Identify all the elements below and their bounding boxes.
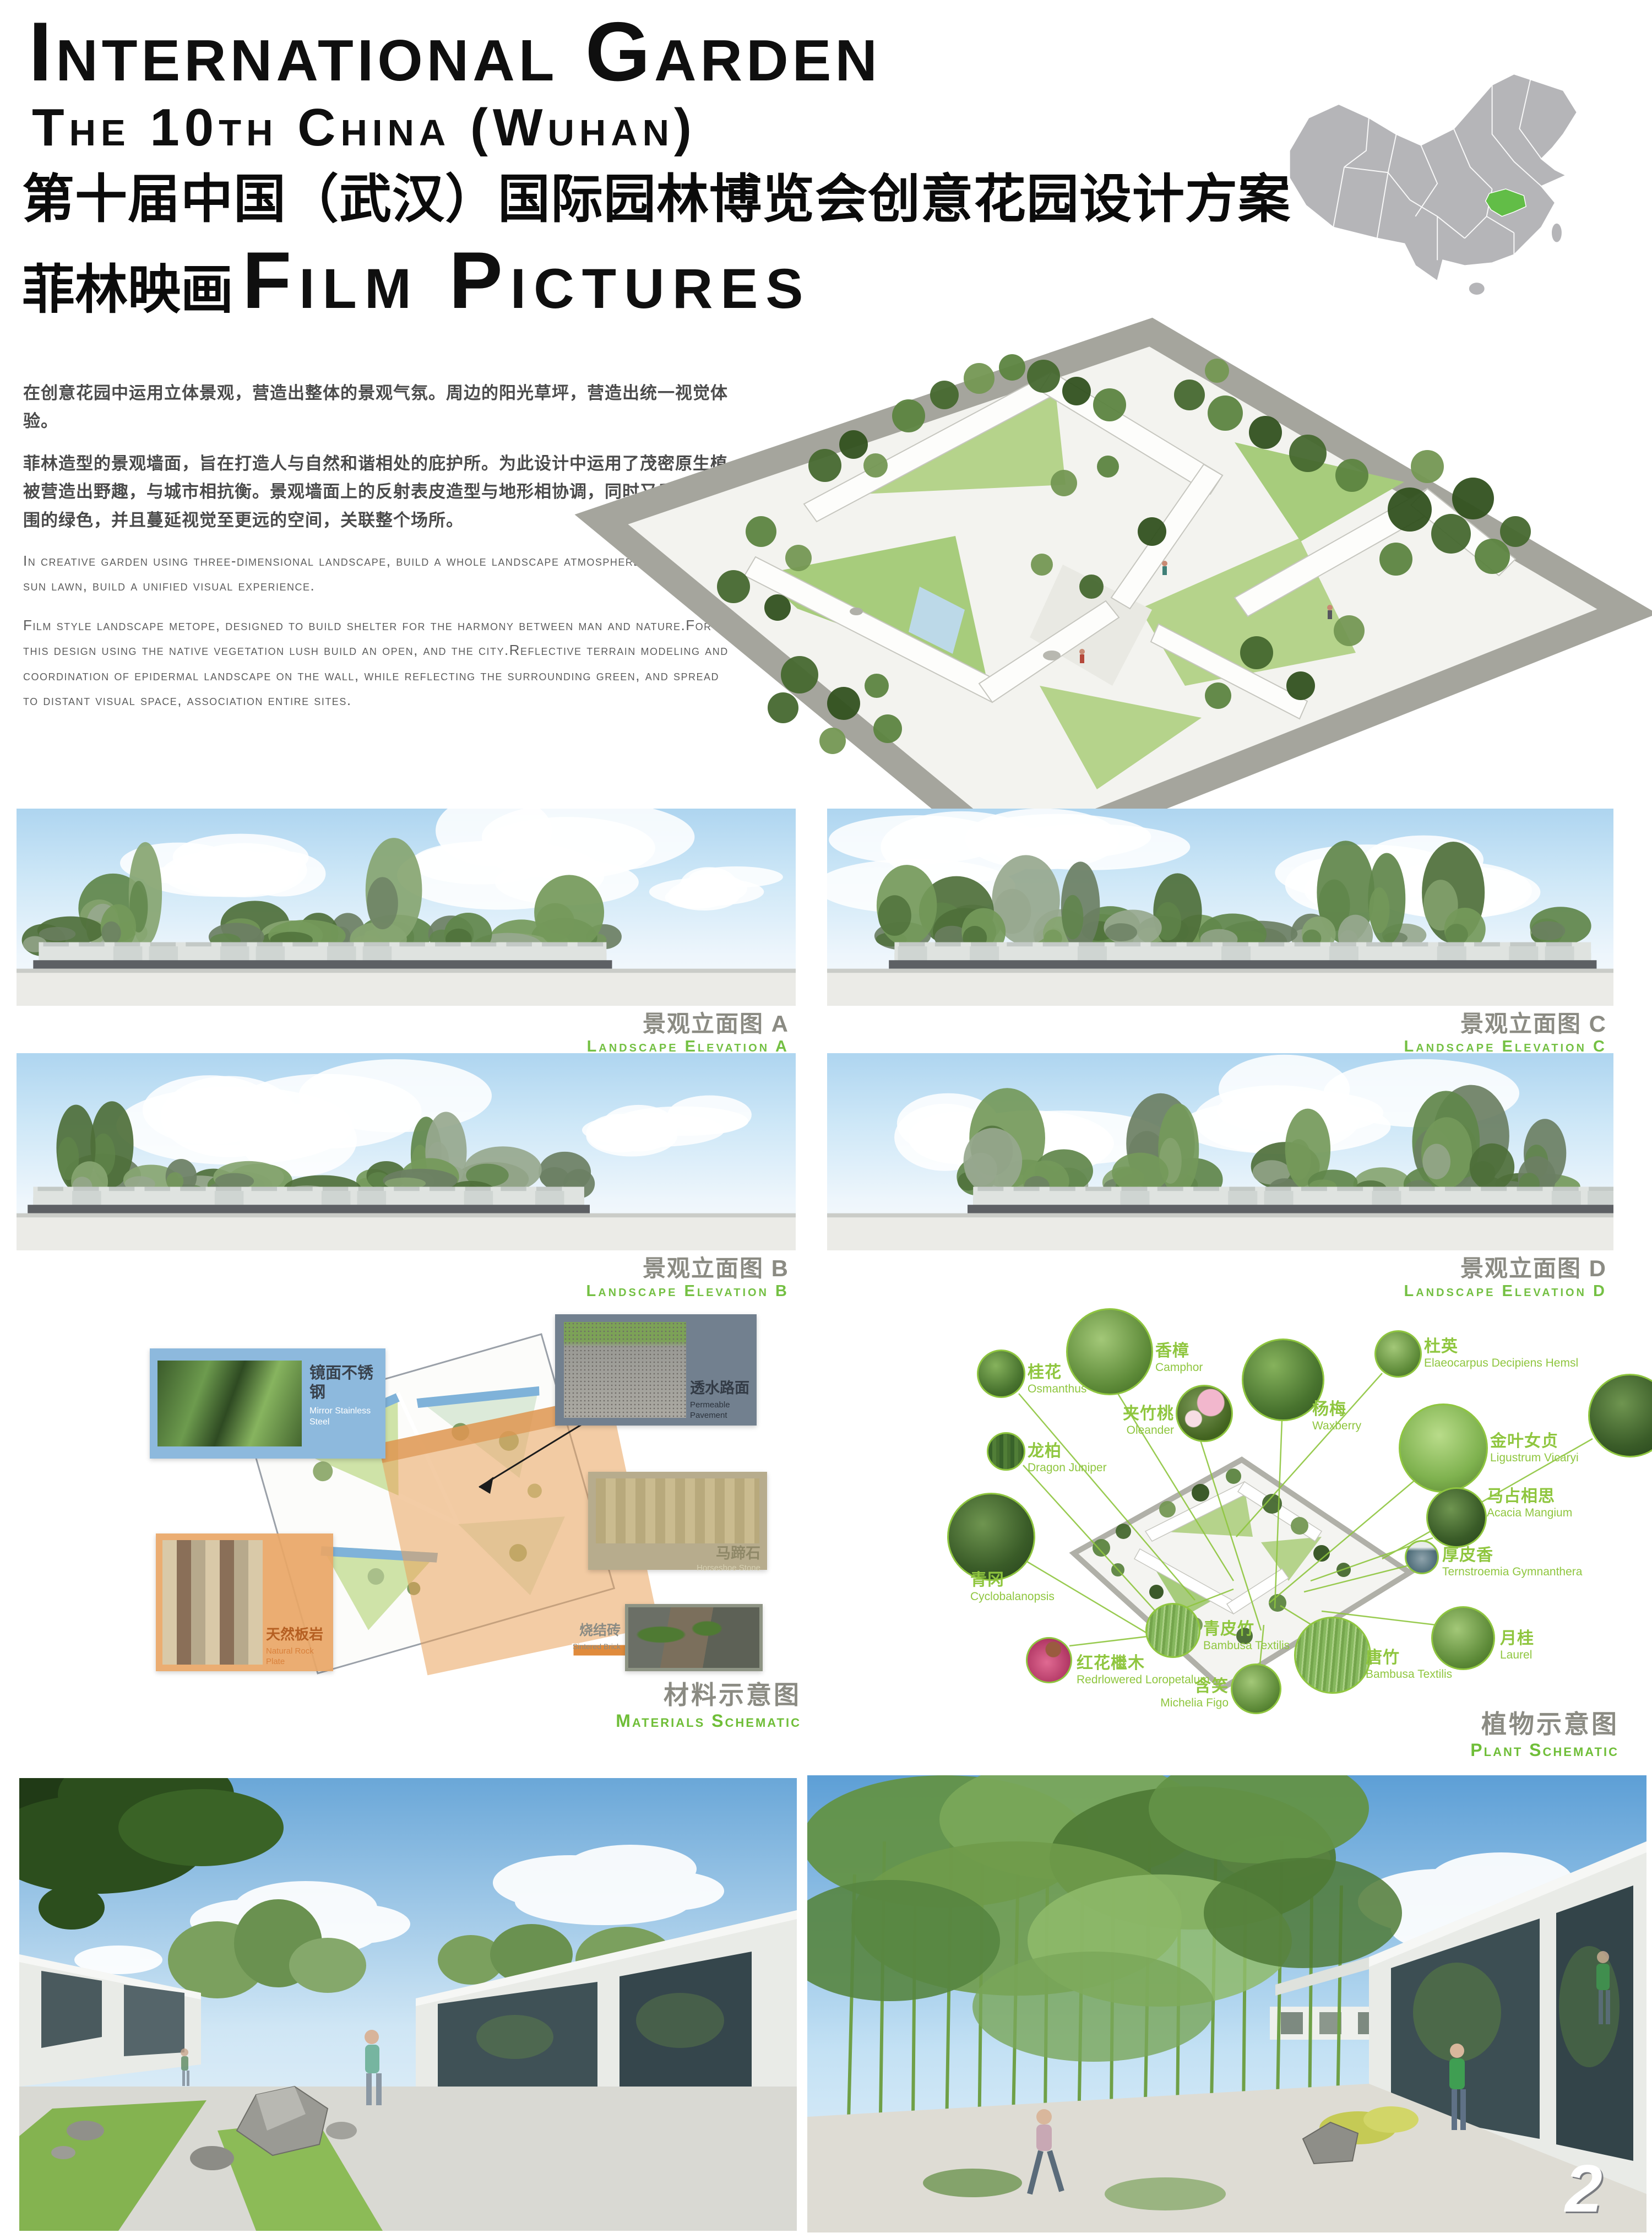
presentation-board: International Garden The 10th China (Wuh… [0,0,1652,2238]
plants-title: 植物示意图 Plant Schematic [1344,1710,1619,1760]
plant-label-en: Waxberry [1312,1419,1361,1433]
plant-label-michelia: 含笑 Michelia Figo [1159,1677,1229,1710]
plant-photo-michelia [1231,1663,1281,1714]
material-card-sintered-brick [625,1604,763,1671]
material-label-cn: 烧结砖 [526,1622,621,1639]
material-photo-horseshoe [596,1478,759,1543]
plant-label-cn: 杜英 [1424,1337,1578,1357]
elevation-panel-d: 景观立面图 D Landscape Elevation D [827,1053,1613,1299]
material-label-en: Permeable Pavement [690,1400,753,1421]
elevation-panel-a: 景观立面图 A Landscape Elevation A [17,809,796,1054]
plant-label-camphor: 香樟 Camphor [1155,1342,1203,1374]
person-figure [1327,605,1333,619]
plant-label-en: Osmanthus [1028,1383,1086,1396]
page-title-chinese: 第十届中国（武汉）国际园林博览会创意花园设计方案 [22,170,1291,230]
render-left-art [19,1778,797,2231]
elevation-label-b: 景观立面图 B Landscape Elevation B [586,1256,790,1300]
elevation-label-cn: 景观立面图 C [1404,1011,1607,1037]
material-label-cn: 马蹄石 [716,1545,760,1562]
materials-title: 材料示意图 Materials Schematic [526,1681,801,1731]
plant-label-elaeocarpus: 杜英 Elaeocarpus Decipiens Hemsl [1424,1337,1578,1370]
plant-label-bambusa-tang: 唐竹 Bambusa Textilis [1366,1649,1452,1681]
plant-label-en: Oleander [1101,1424,1174,1437]
material-label-cn: 镜面不锈钢 [309,1364,382,1402]
material-card-mirror-stainless-steel: 镜面不锈钢 Mirror Stainless Steel [150,1348,385,1459]
plant-photo-bambusa-qingpi [1145,1603,1200,1658]
plant-photo-cyclobalanopsis [947,1493,1035,1581]
plant-label-cn: 青冈 [970,1571,1055,1590]
material-photo-permeable [564,1322,686,1418]
material-photo-natural-rock [162,1540,263,1665]
elevation-label-cn: 景观立面图 A [587,1011,789,1037]
material-label-en: Natural Rock Plate [266,1646,330,1667]
plant-photo-loropetalum [1026,1637,1072,1683]
material-photo-sintered [628,1607,759,1668]
elevation-art [827,809,1613,1006]
plant-label-dragon-juniper: 龙柏 Dragon Juniper [1028,1442,1107,1475]
china-outline [1290,74,1577,281]
plant-label-ligustrum: 金叶女贞 Ligustrum Vicaryi [1490,1432,1579,1465]
plant-label-cn: 香樟 [1155,1342,1203,1361]
plant-photo-acacia [1426,1487,1487,1548]
plant-photo-ligustrum [1399,1404,1488,1493]
plant-photo-dragon-juniper [987,1432,1025,1471]
perspective-render-left [19,1778,797,2231]
plant-label-en: Bambusa Textilis [1366,1668,1452,1681]
material-label-en: Horseshoe Stone [697,1563,760,1574]
person-figure [1079,649,1085,663]
material-card-horseshoe-stone: 马蹄石 Horseshoe Stone [588,1472,767,1570]
plants-title-cn: 植物示意图 [1344,1710,1619,1738]
plant-label-waxberry: 杨梅 Waxberry [1312,1400,1361,1433]
page-subtitle: The 10th China (Wuhan) [32,101,697,154]
plant-label-en: Dragon Juniper [1028,1461,1107,1475]
elevation-image-c [827,809,1613,1006]
elevation-panel-c: 景观立面图 C Landscape Elevation C [827,809,1613,1054]
plant-photo-elaeocarpus [1374,1330,1422,1378]
plant-label-cn: 厚皮香 [1442,1546,1582,1565]
aerial-perspective-render [567,300,1652,865]
plant-label-en: Laurel [1500,1649,1534,1662]
elevation-label-cn: 景观立面图 D [1404,1256,1607,1281]
elevation-image-b [17,1053,796,1250]
elevation-label-cn: 景观立面图 B [586,1256,790,1281]
plant-photo-ternstroemia [1405,1540,1439,1574]
plant-label-en: Michelia Figo [1159,1697,1229,1710]
material-label-en: Sintered Brick [526,1642,621,1652]
material-photo-mirror [157,1361,302,1446]
materials-title-en: Materials Schematic [526,1711,801,1731]
elevation-label-d: 景观立面图 D Landscape Elevation D [1404,1256,1607,1300]
hainan-shape [1469,283,1485,295]
plant-label-en: Camphor [1155,1361,1203,1374]
elevation-art [17,1053,796,1250]
elevation-label-en: Landscape Elevation B [586,1283,790,1300]
plant-label-en: Elaeocarpus Decipiens Hemsl [1424,1357,1578,1370]
plants-title-en: Plant Schematic [1344,1741,1619,1760]
plant-schematic: 桂花 Osmanthus 香樟 Camphor 夹竹桃 Oleander 杨梅 … [936,1294,1652,1742]
elevation-image-d [827,1053,1613,1250]
perspective-render-right [807,1775,1646,2232]
brand-name-chinese: 菲林映画 [22,247,233,323]
plant-label-osmanthus: 桂花 Osmanthus [1028,1363,1086,1396]
elevation-panel-b: 景观立面图 B Landscape Elevation B [17,1053,796,1299]
aerial-art [567,300,1652,865]
page-title: International Garden [29,10,881,94]
elevation-label-c: 景观立面图 C Landscape Elevation C [1404,1011,1607,1056]
materials-schematic: 镜面不锈钢 Mirror Stainless Steel 透水路面 Permea… [140,1300,856,1741]
plant-label-cn: 月桂 [1500,1629,1534,1649]
plant-label-cn: 马占相思 [1487,1487,1572,1507]
plant-label-cn: 金叶女贞 [1490,1432,1579,1451]
material-label-en: Mirror Stainless Steel [309,1406,382,1428]
plant-label-cn: 龙柏 [1028,1442,1107,1461]
plant-label-en: Cyclobalanopsis [970,1590,1055,1603]
plant-label-oleander: 夹竹桃 Oleander [1101,1405,1174,1437]
plant-label-en: Acacia Mangium [1487,1507,1572,1520]
plant-label-acacia: 马占相思 Acacia Mangium [1487,1487,1572,1520]
plant-label-cn: 夹竹桃 [1101,1405,1174,1424]
plant-photo-osmanthus [977,1350,1025,1398]
elevation-image-a [17,809,796,1006]
elevation-label-a: 景观立面图 A Landscape Elevation A [587,1011,789,1056]
person-figure [1162,561,1167,575]
elevation-art [827,1053,1613,1250]
plant-label-cyclobalanopsis: 青冈 Cyclobalanopsis [970,1571,1055,1603]
material-label-cn: 透水路面 [690,1379,753,1397]
plant-label-cn: 杨梅 [1312,1400,1361,1419]
plant-label-cn: 青皮竹 [1203,1620,1290,1639]
material-card-natural-rock-plate: 天然板岩 Natural Rock Plate [156,1533,333,1671]
plant-photo-oleander [1176,1385,1233,1442]
plant-label-en: Ligustrum Vicaryi [1490,1451,1579,1465]
plant-label-cn: 唐竹 [1366,1649,1452,1668]
page-number: 2 [1565,2155,1602,2222]
plant-label-cn: 含笑 [1159,1677,1229,1697]
materials-title-cn: 材料示意图 [526,1681,801,1709]
material-label-sintered: 烧结砖 Sintered Brick [526,1622,621,1652]
plant-label-bambusa-qingpi: 青皮竹 Bambusa Textilis [1203,1620,1290,1652]
plant-label-cn: 桂花 [1028,1363,1086,1383]
material-card-permeable-pavement: 透水路面 Permeable Pavement [555,1314,757,1426]
elevation-art [17,809,796,1006]
plant-photo-bambusa-tang [1294,1617,1371,1694]
plant-label-ternstroemia: 厚皮香 Ternstroemia Gymnanthera [1442,1546,1582,1579]
material-label-cn: 天然板岩 [266,1626,330,1643]
plant-label-laurel: 月桂 Laurel [1500,1629,1534,1662]
plant-label-en: Bambusa Textilis [1203,1639,1290,1652]
taiwan-shape [1552,224,1562,242]
render-right-art [807,1775,1646,2232]
plant-label-en: Ternstroemia Gymnanthera [1442,1565,1582,1579]
plant-label-cn: 红花檵木 [1077,1654,1210,1673]
